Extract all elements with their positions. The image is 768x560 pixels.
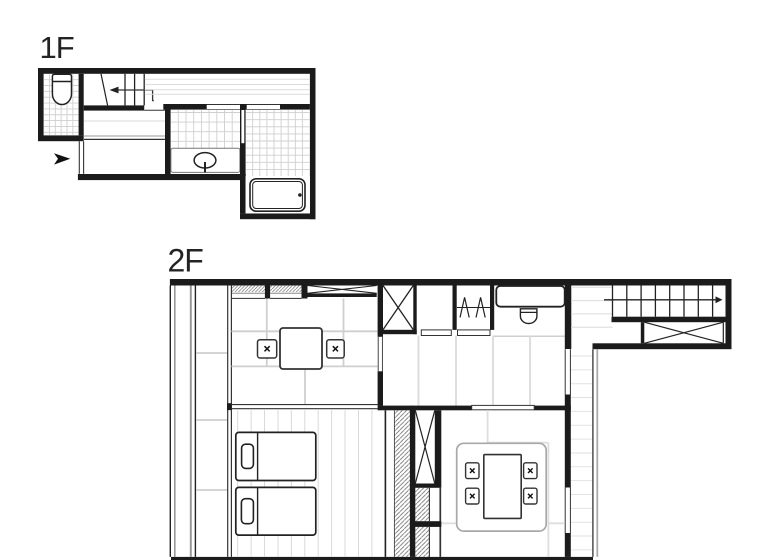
svg-text:2F: 2F — [168, 243, 204, 279]
svg-text:1F: 1F — [40, 30, 74, 65]
